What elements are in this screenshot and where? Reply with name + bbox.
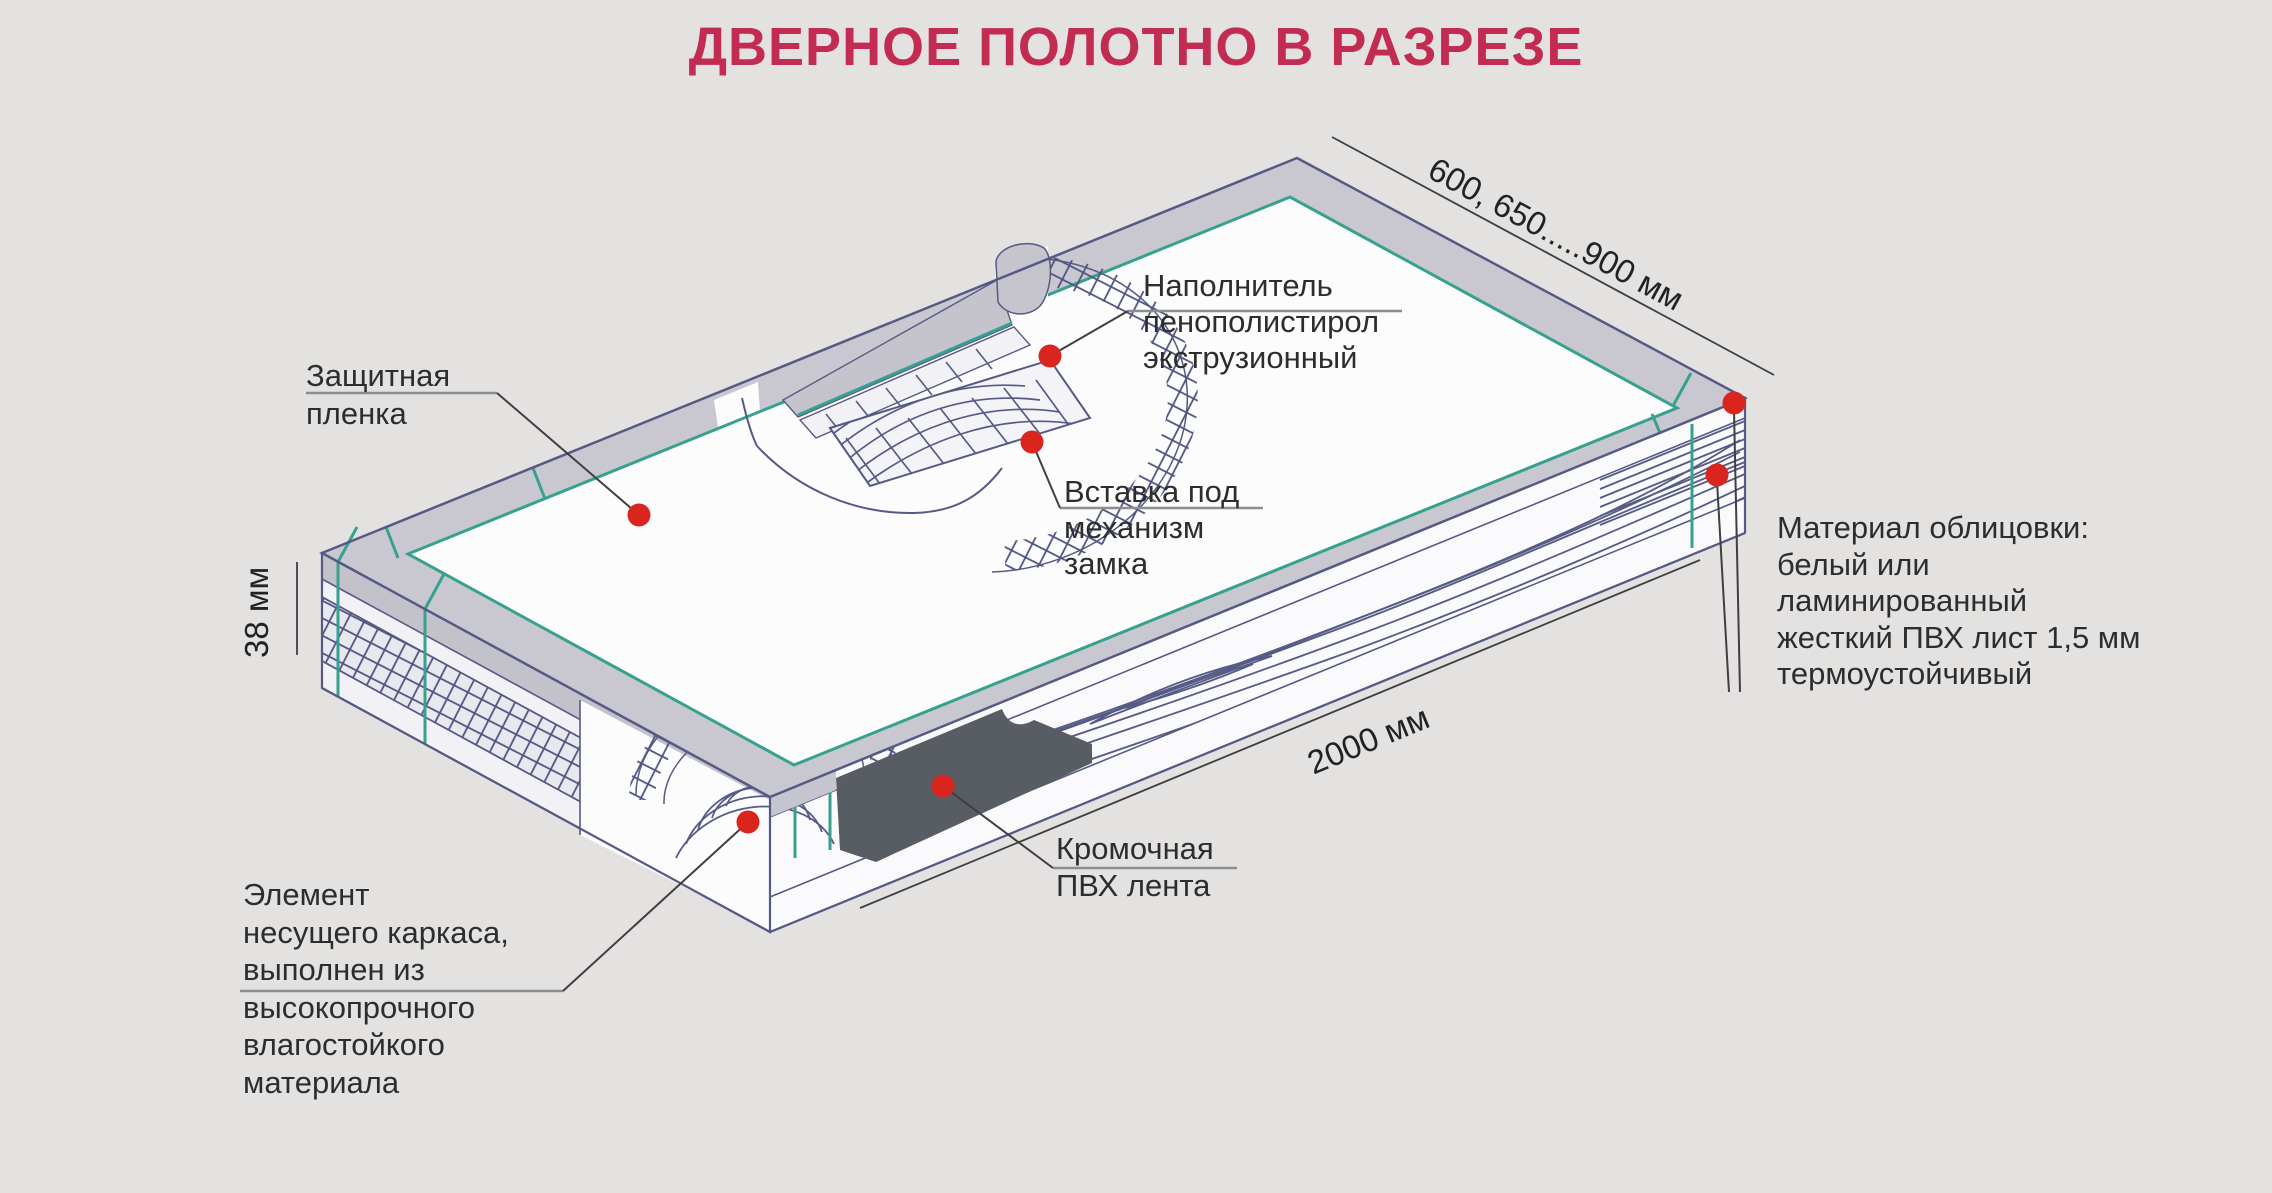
marker-dot-filler	[1039, 345, 1062, 368]
label-edge-tape: Кромочная ПВХ лента	[1056, 830, 1214, 904]
film-curl	[996, 244, 1050, 314]
label-lock-insert: Вставка под механизм замка	[1064, 474, 1239, 582]
marker-dot-frame-element	[737, 811, 760, 834]
marker-dot-facing-top	[1723, 392, 1746, 415]
marker-dot-protective-film	[628, 504, 651, 527]
marker-dot-facing-bottom	[1706, 464, 1729, 487]
label-protective-film: Защитная пленка	[306, 357, 450, 433]
infographic-canvas: ДВЕРНОЕ ПОЛОТНО В РАЗРЕЗЕ	[0, 0, 2272, 1193]
marker-dot-lock-insert	[1021, 431, 1044, 454]
label-filler: Наполнитель пенополистирол экструзионный	[1143, 268, 1379, 376]
dimension-thickness-text: 38 мм	[238, 567, 276, 658]
marker-dot-edge-tape	[932, 775, 955, 798]
label-facing-material: Материал облицовки: белый или ламинирова…	[1777, 510, 2140, 693]
label-frame-element: Элемент несущего каркаса, выполнен из вы…	[243, 876, 509, 1101]
